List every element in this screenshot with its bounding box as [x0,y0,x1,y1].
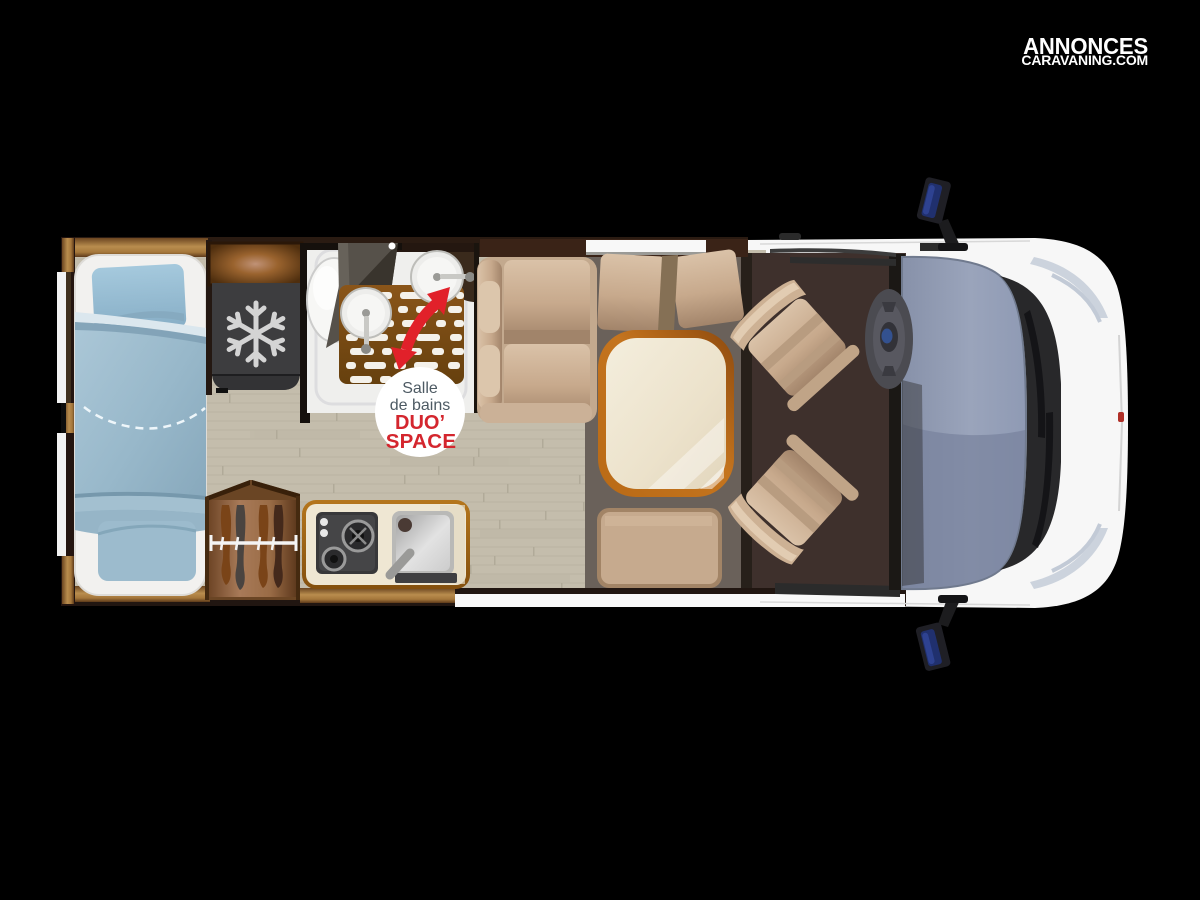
svg-text:Salle: Salle [402,380,438,397]
svg-text:CARAVANING.COM: CARAVANING.COM [1021,52,1148,68]
svg-text:SPACE: SPACE [386,430,457,453]
